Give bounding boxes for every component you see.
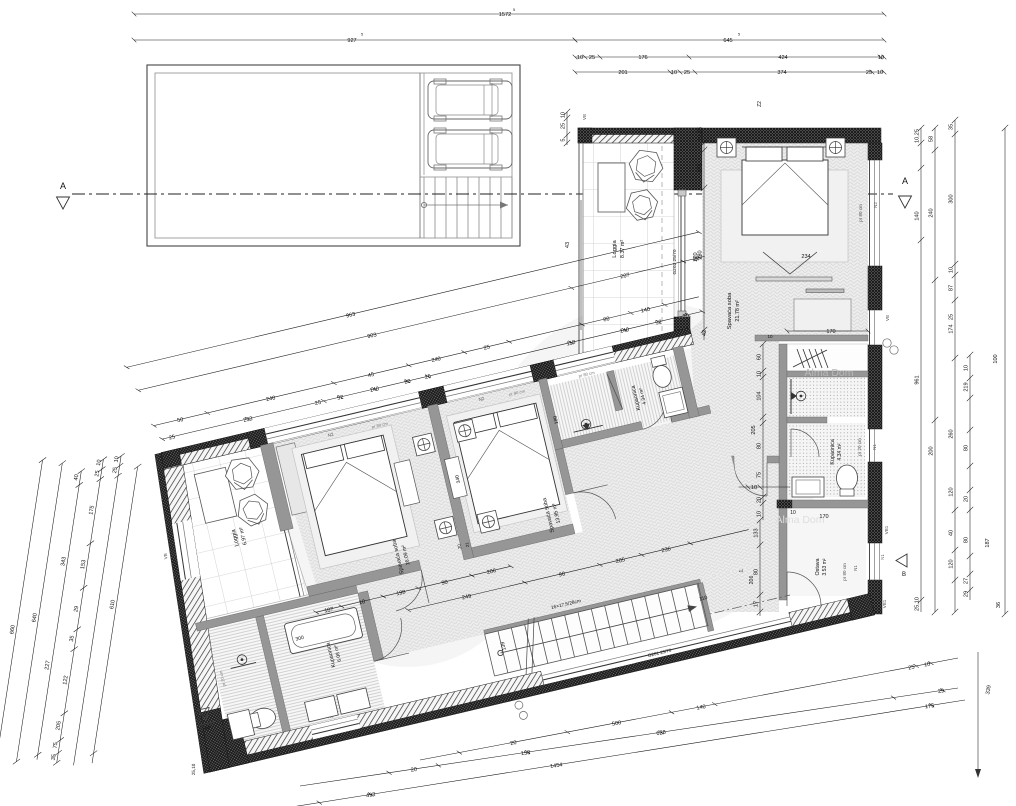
- svg-text:10,25: 10,25: [915, 129, 921, 143]
- svg-text:4.34 m²: 4.34 m²: [837, 443, 843, 460]
- svg-text:100: 100: [993, 354, 999, 363]
- svg-text:A: A: [902, 176, 908, 186]
- svg-text:29: 29: [73, 605, 80, 612]
- svg-text:58: 58: [929, 136, 935, 142]
- svg-text:140: 140: [915, 211, 921, 220]
- svg-text:101: 101: [698, 163, 704, 172]
- svg-text:10: 10: [114, 456, 121, 463]
- svg-text:133: 133: [754, 528, 760, 537]
- svg-text:25: 25: [94, 470, 101, 477]
- svg-text:VB: VB: [582, 114, 587, 120]
- svg-text:170: 170: [819, 514, 828, 520]
- svg-text:Kupaonica: Kupaonica: [830, 439, 836, 464]
- svg-text:5: 5: [513, 8, 515, 12]
- svg-text:29: 29: [964, 591, 970, 597]
- svg-text:10: 10: [790, 510, 796, 516]
- svg-text:pr 80 cm: pr 80 cm: [858, 204, 863, 222]
- svg-text:35: 35: [51, 754, 58, 761]
- svg-text:G202 25/70: G202 25/70: [672, 249, 678, 274]
- svg-text:120: 120: [949, 559, 955, 568]
- svg-text:10: 10: [577, 55, 583, 61]
- svg-text:10: 10: [767, 334, 773, 339]
- svg-text:1572: 1572: [499, 12, 511, 18]
- svg-text:25: 25: [866, 70, 872, 76]
- svg-text:25: 25: [112, 467, 119, 474]
- svg-text:206: 206: [749, 576, 755, 585]
- svg-text:80: 80: [964, 445, 970, 451]
- svg-text:10: 10: [964, 365, 970, 371]
- svg-text:25: 25: [908, 664, 915, 671]
- svg-text:35: 35: [69, 635, 76, 642]
- svg-text:43: 43: [565, 242, 571, 248]
- svg-text:36: 36: [996, 602, 1002, 608]
- svg-text:35: 35: [949, 124, 955, 130]
- svg-text:20: 20: [510, 740, 517, 747]
- svg-text:17: 17: [754, 601, 760, 607]
- svg-text:VB1: VB1: [884, 525, 889, 534]
- svg-text:10: 10: [924, 661, 931, 668]
- svg-text:10: 10: [949, 267, 955, 273]
- svg-text:174: 174: [949, 324, 955, 333]
- svg-text:20: 20: [410, 767, 417, 774]
- svg-text:5: 5: [561, 138, 567, 141]
- svg-text:10: 10: [671, 70, 677, 76]
- svg-text:424: 424: [778, 55, 787, 61]
- svg-text:pr 20 cm: pr 20 cm: [857, 438, 862, 456]
- svg-text:219: 219: [964, 382, 970, 391]
- svg-text:N1: N1: [853, 565, 858, 571]
- svg-text:645: 645: [723, 38, 732, 44]
- svg-text:170: 170: [826, 329, 835, 335]
- svg-text:N1: N1: [880, 554, 885, 560]
- svg-text:5: 5: [738, 33, 740, 37]
- svg-text:187: 187: [985, 538, 991, 547]
- svg-text:80: 80: [757, 443, 763, 449]
- svg-text:200: 200: [929, 446, 935, 455]
- svg-text:300: 300: [949, 194, 955, 203]
- svg-text:75: 75: [53, 742, 60, 749]
- svg-text:25: 25: [949, 314, 955, 320]
- svg-text:104: 104: [757, 391, 763, 400]
- svg-text:240: 240: [929, 208, 935, 217]
- svg-text:10: 10: [757, 371, 763, 377]
- svg-text:87: 87: [949, 285, 955, 291]
- svg-text:VB1: VB1: [882, 599, 887, 608]
- svg-text:10: 10: [751, 485, 757, 491]
- svg-text:20: 20: [757, 497, 763, 503]
- svg-text:205: 205: [751, 425, 757, 434]
- svg-text:A: A: [60, 181, 66, 191]
- svg-text:27: 27: [964, 578, 970, 584]
- svg-text:Z2: Z2: [757, 101, 763, 107]
- svg-text:120: 120: [949, 487, 955, 496]
- svg-text:10: 10: [561, 112, 567, 118]
- svg-text:234: 234: [801, 254, 810, 260]
- svg-text:8.37 m²: 8.37 m²: [620, 240, 626, 258]
- svg-text:3.53 m²: 3.53 m²: [822, 558, 828, 575]
- svg-text:N1: N1: [872, 444, 877, 450]
- svg-text:25: 25: [561, 123, 567, 129]
- svg-text:25,10: 25,10: [191, 763, 196, 775]
- svg-text:29: 29: [938, 688, 945, 695]
- svg-text:25: 25: [684, 70, 690, 76]
- svg-text:VB: VB: [163, 553, 168, 559]
- svg-text:80: 80: [754, 569, 760, 575]
- svg-text:75: 75: [757, 472, 763, 478]
- svg-text:40: 40: [949, 530, 955, 536]
- svg-text:Loggia: Loggia: [612, 240, 618, 258]
- svg-text:927: 927: [347, 38, 356, 44]
- svg-text:Alma Dom: Alma Dom: [804, 367, 853, 379]
- svg-text:Alma Dom: Alma Dom: [775, 514, 824, 526]
- svg-text:260: 260: [949, 429, 955, 438]
- svg-text:10: 10: [757, 511, 763, 517]
- svg-text:42: 42: [702, 330, 708, 336]
- svg-text:25: 25: [589, 55, 595, 61]
- svg-text:Ostava: Ostava: [815, 558, 821, 575]
- svg-text:VB: VB: [885, 315, 890, 321]
- svg-text:201: 201: [618, 70, 627, 76]
- svg-text:25,10: 25,10: [915, 597, 921, 611]
- svg-text:176: 176: [638, 55, 647, 61]
- svg-text:10,25: 10,25: [698, 127, 704, 141]
- svg-text:10: 10: [877, 70, 883, 76]
- svg-text:10: 10: [96, 459, 103, 466]
- svg-text:pr 80 cm: pr 80 cm: [842, 563, 847, 581]
- svg-text:60: 60: [757, 354, 763, 360]
- svg-text:20: 20: [964, 496, 970, 502]
- svg-text:5: 5: [361, 33, 363, 37]
- svg-text:961: 961: [915, 375, 921, 384]
- svg-text:374: 374: [777, 70, 786, 76]
- svg-text:N2: N2: [873, 202, 878, 208]
- svg-text:80: 80: [964, 537, 970, 543]
- svg-text:Spavaća soba: Spavaća soba: [727, 292, 733, 330]
- svg-text:21.78 m²: 21.78 m²: [735, 300, 741, 321]
- svg-text:40: 40: [73, 474, 80, 481]
- svg-text:B: B: [902, 572, 906, 578]
- svg-text:10: 10: [878, 55, 884, 61]
